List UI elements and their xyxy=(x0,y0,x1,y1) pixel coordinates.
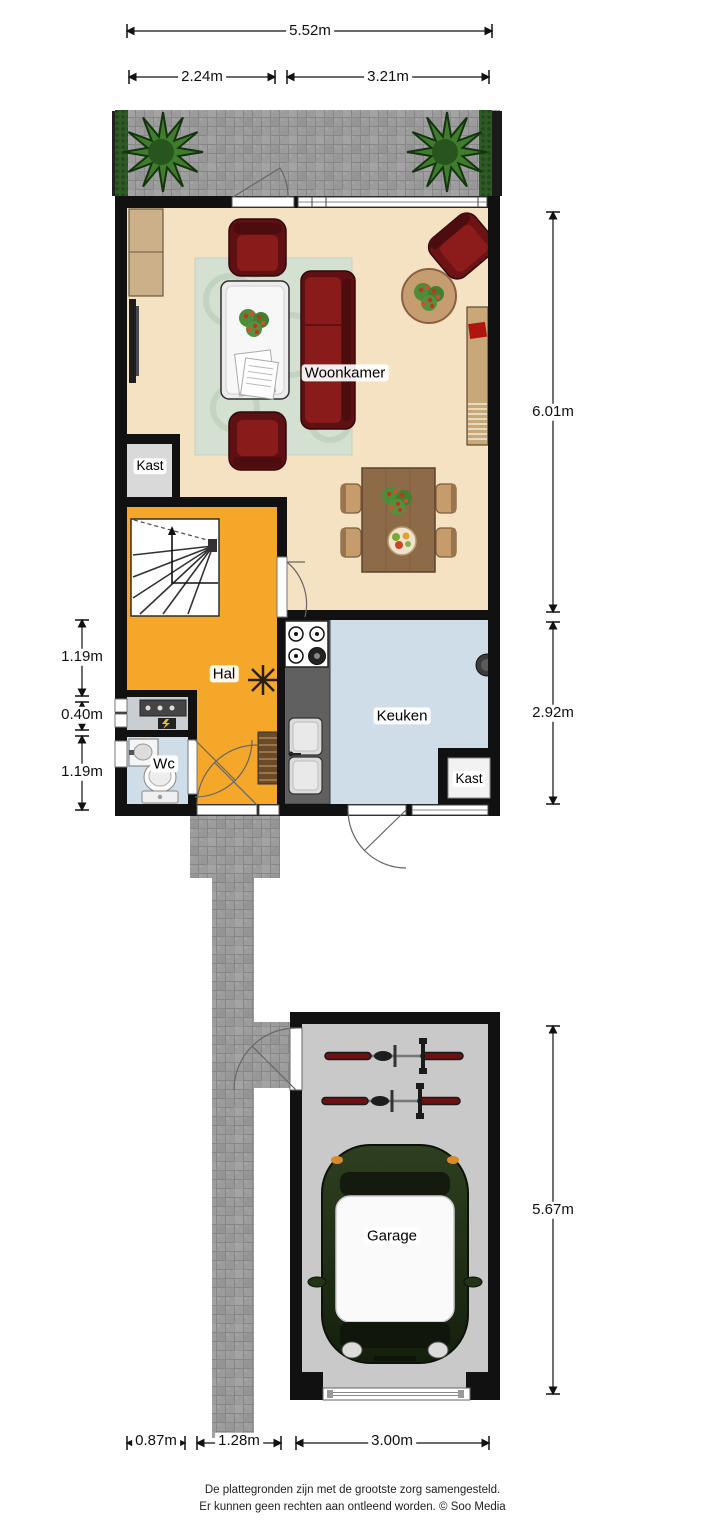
dining-chair xyxy=(341,484,361,513)
dim-line-right-upper xyxy=(546,212,560,612)
dining-table xyxy=(362,468,435,572)
dim-line-bottom-left xyxy=(127,1436,185,1450)
garage-side-door xyxy=(290,1028,302,1090)
front-sidelight-window xyxy=(259,805,279,815)
toilet xyxy=(142,762,178,803)
dining-chair xyxy=(341,528,361,557)
car-mirror xyxy=(308,1277,326,1287)
car-indicator xyxy=(447,1156,459,1164)
wc-door xyxy=(188,740,197,794)
sofa xyxy=(301,271,355,429)
car-mirror xyxy=(464,1277,482,1287)
floorplan-canvas xyxy=(0,0,705,1536)
car-headlight xyxy=(428,1342,448,1358)
dim-line-right-mid xyxy=(546,622,560,804)
armchair xyxy=(229,219,286,276)
sideboard xyxy=(129,209,163,296)
terrace-door xyxy=(232,197,294,207)
armchair xyxy=(229,412,286,470)
fruit-bowl xyxy=(388,527,416,555)
kitchen-window xyxy=(412,805,488,815)
coffee-table xyxy=(221,281,289,399)
dim-line-right-garage xyxy=(546,1026,560,1394)
tv xyxy=(129,299,139,383)
dim-line-left-top xyxy=(75,620,89,696)
kitchen-door xyxy=(348,805,406,815)
terrace-window xyxy=(298,197,487,207)
dim-line-top-right xyxy=(287,70,489,84)
dim-line-bottom-right xyxy=(296,1436,489,1450)
car-indicator xyxy=(331,1156,343,1164)
car-headlight xyxy=(342,1342,362,1358)
terrace xyxy=(112,110,502,196)
dim-line-left-mid xyxy=(75,702,89,730)
dim-line-bottom-mid xyxy=(197,1436,281,1450)
hal-woonkamer-door xyxy=(277,557,287,617)
dim-line-top-total xyxy=(127,24,492,38)
wc-sink xyxy=(129,739,158,766)
stove xyxy=(285,621,328,667)
garden-path xyxy=(190,816,290,1438)
side-table xyxy=(402,269,456,323)
bookshelf xyxy=(467,307,488,445)
front-door xyxy=(197,805,257,815)
dining-chair xyxy=(436,528,456,557)
garage-door xyxy=(323,1388,470,1400)
car xyxy=(308,1145,482,1363)
coat-rack-icon xyxy=(248,665,278,695)
kast-upper-interior xyxy=(127,444,172,497)
staircase xyxy=(131,519,219,616)
wc-window xyxy=(115,741,127,767)
dining-chair xyxy=(436,484,456,513)
dim-line-left-bottom xyxy=(75,736,89,810)
kast-keuken-interior xyxy=(448,758,490,798)
dim-line-top-left xyxy=(129,70,275,84)
car-roof xyxy=(336,1196,454,1322)
